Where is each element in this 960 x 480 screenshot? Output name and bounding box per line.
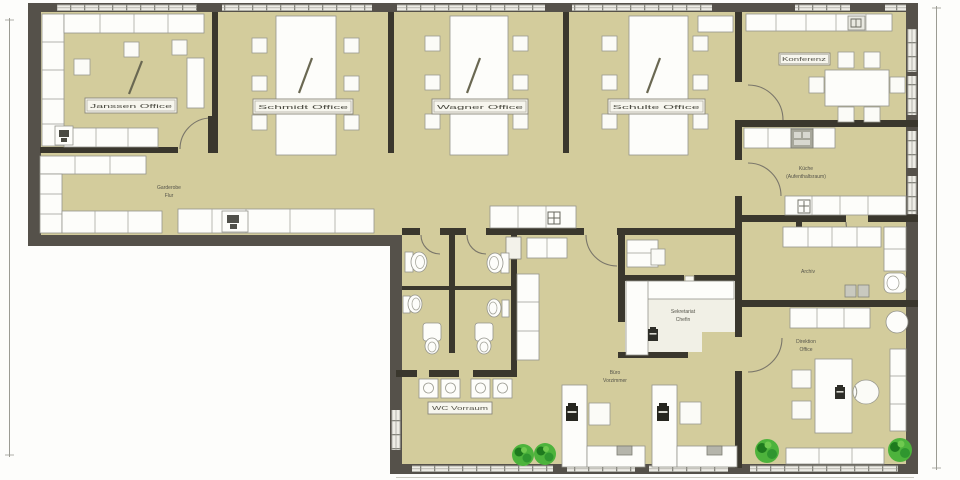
svg-text:Büro: Büro	[610, 370, 621, 376]
svg-text:Flur: Flur	[165, 193, 174, 199]
svg-text:Janssen Office: Janssen Office	[90, 104, 172, 110]
svg-text:Archiv: Archiv	[801, 269, 815, 275]
svg-text:Office: Office	[800, 347, 813, 353]
svg-text:Wagner Office: Wagner Office	[437, 105, 523, 111]
svg-text:Schulte Office: Schulte Office	[613, 105, 700, 111]
svg-text:Vorzimmer: Vorzimmer	[603, 378, 627, 384]
svg-text:Schmidt Office: Schmidt Office	[258, 105, 348, 111]
svg-text:Konferenz: Konferenz	[782, 57, 827, 63]
svg-text:Sekretariat: Sekretariat	[671, 309, 696, 315]
svg-text:WC Vorraum: WC Vorraum	[432, 406, 488, 412]
svg-text:(Aufenthaltsraum): (Aufenthaltsraum)	[786, 174, 826, 180]
svg-text:Garderobe: Garderobe	[157, 185, 181, 191]
svg-text:Küche: Küche	[799, 166, 813, 172]
svg-text:Chefin: Chefin	[676, 317, 691, 323]
svg-text:Direktion: Direktion	[796, 339, 816, 345]
